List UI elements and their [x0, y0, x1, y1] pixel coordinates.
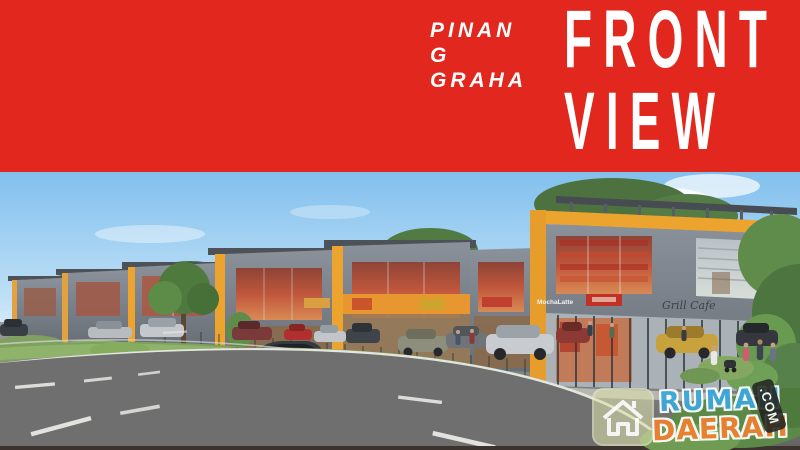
- brand-line-3: GRAHA: [430, 68, 527, 93]
- title-view: VIEW: [564, 82, 726, 162]
- brand-line-1: PINAN: [430, 18, 527, 43]
- pedestrian: [743, 343, 749, 361]
- pedestrian: [770, 343, 776, 361]
- brand-line-2: G: [430, 43, 527, 68]
- pedestrian: [757, 339, 763, 360]
- shop-sign-grill: Grill Cafe: [662, 299, 716, 312]
- header-banner: PINAN G GRAHA FRONT VIEW: [0, 0, 800, 175]
- house-icon: [592, 388, 654, 446]
- pedestrian: [588, 321, 593, 336]
- brand-name: PINAN G GRAHA: [430, 18, 527, 93]
- logo-tile: [592, 388, 654, 446]
- watermark-logo: RUMAH DAERAH .COM: [586, 381, 800, 450]
- title-front: FRONT: [564, 0, 778, 80]
- pedestrian: [711, 345, 717, 365]
- pedestrian: [470, 329, 475, 344]
- pedestrian: [682, 326, 687, 341]
- promo-image: PINAN G GRAHA FRONT VIEW: [0, 0, 800, 450]
- pedestrian: [610, 323, 615, 338]
- pedestrian: [456, 330, 461, 345]
- shop-sign-mocha: MochaLatte: [537, 299, 574, 306]
